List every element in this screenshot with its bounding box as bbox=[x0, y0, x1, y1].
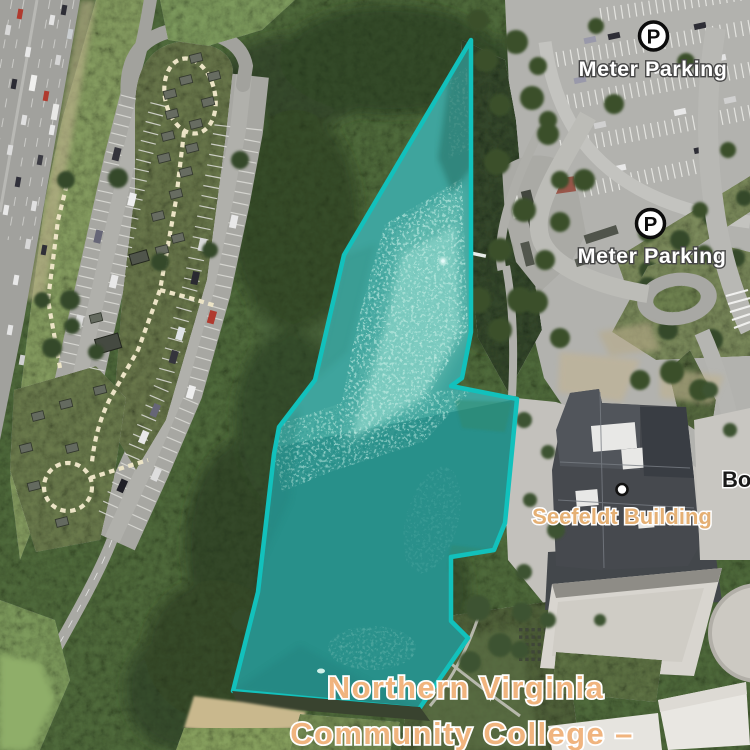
svg-text:Community College –: Community College – bbox=[290, 716, 634, 750]
svg-text:P: P bbox=[644, 213, 658, 236]
svg-text:Meter Parking: Meter Parking bbox=[578, 244, 727, 268]
svg-text:Meter Parking: Meter Parking bbox=[579, 57, 728, 81]
svg-text:Bo: Bo bbox=[722, 467, 750, 492]
svg-text:Northern Virginia: Northern Virginia bbox=[328, 670, 604, 705]
svg-text:P: P bbox=[647, 25, 661, 48]
svg-text:Seefeldt Building: Seefeldt Building bbox=[532, 504, 712, 529]
